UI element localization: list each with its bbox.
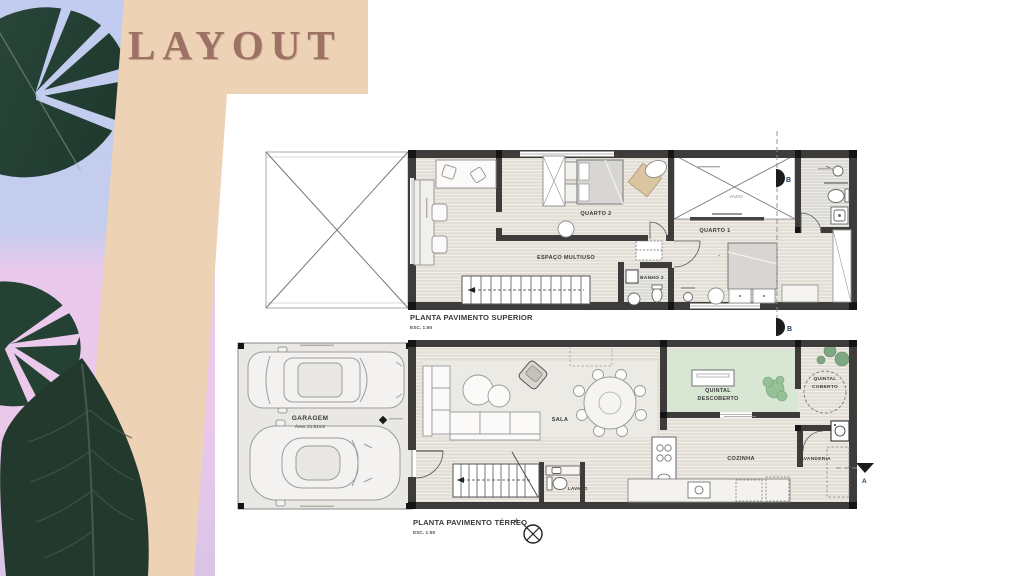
label-quintal-coberto-1: QUINTAL xyxy=(813,376,836,382)
label-quintal-descoberto-1: QUINTAL xyxy=(705,388,731,394)
car-suv xyxy=(248,347,404,413)
upper-floor-plan: B B QUARTO 2 ESPAÇO MULTIUSO VAZIO QUART… xyxy=(255,125,873,337)
side-table-small xyxy=(488,385,510,407)
label-sala: SALA xyxy=(552,417,568,423)
label-banho2: BANHO 2 xyxy=(640,275,664,281)
ground-plan-title: PLANTA PAVIMENTO TÉRREO xyxy=(413,518,527,527)
quintal-descoberto xyxy=(663,350,798,412)
label-quarto2: QUARTO 2 xyxy=(580,211,611,217)
upper-plan-title: PLANTA PAVIMENTO SUPERIOR xyxy=(410,313,533,322)
presentation-slide: LAYOUT xyxy=(0,0,1024,576)
section-b-bottom-label: B xyxy=(787,326,792,333)
section-b-top-label: B xyxy=(786,177,791,184)
upper-plan-scale: ESC. 1:50 xyxy=(410,325,432,331)
label-lavanderia: LAVANDERIA xyxy=(797,456,831,462)
label-quintal-descoberto-2: DESCOBERTO xyxy=(698,396,739,402)
label-cozinha: COZINHA xyxy=(727,456,755,462)
upper-stairs xyxy=(462,276,590,304)
label-quarto1: QUARTO 1 xyxy=(699,228,730,234)
label-lavabo: LAVABO xyxy=(568,486,588,491)
label-garagem-area: Área: 21,51m2 xyxy=(295,423,326,429)
label-espaco-multiuso: ESPAÇO MULTIUSO xyxy=(537,255,595,261)
label-quintal-coberto-2: COBERTO xyxy=(812,384,838,390)
label-garagem: GARAGEM xyxy=(292,415,329,422)
pergola-open-area xyxy=(266,152,426,308)
page-title: LAYOUT xyxy=(128,21,368,69)
ground-floor-plan: A N GARAGEM Área: 21,51m2 SALA LAVABO CO… xyxy=(228,336,884,548)
car-compact xyxy=(250,420,400,506)
label-vazio: VAZIO xyxy=(729,194,743,199)
ground-plan-scale: ESC. 1:50 xyxy=(413,530,435,536)
section-a-label: A xyxy=(862,478,867,485)
large-leaf-bottom xyxy=(0,340,160,576)
